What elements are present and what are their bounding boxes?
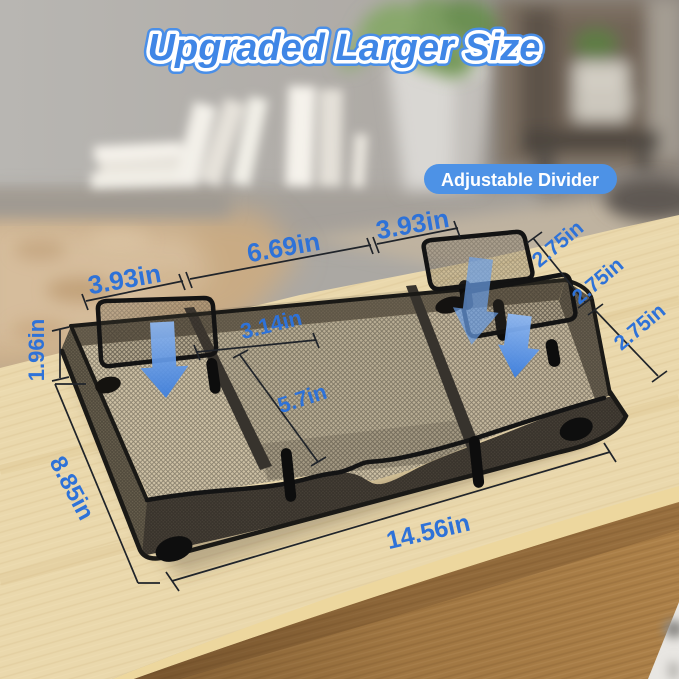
svg-text:Adjustable Divider: Adjustable Divider xyxy=(441,170,599,190)
svg-text:1.96in: 1.96in xyxy=(24,319,49,381)
svg-text:Upgraded Larger Size: Upgraded Larger Size xyxy=(148,27,541,69)
